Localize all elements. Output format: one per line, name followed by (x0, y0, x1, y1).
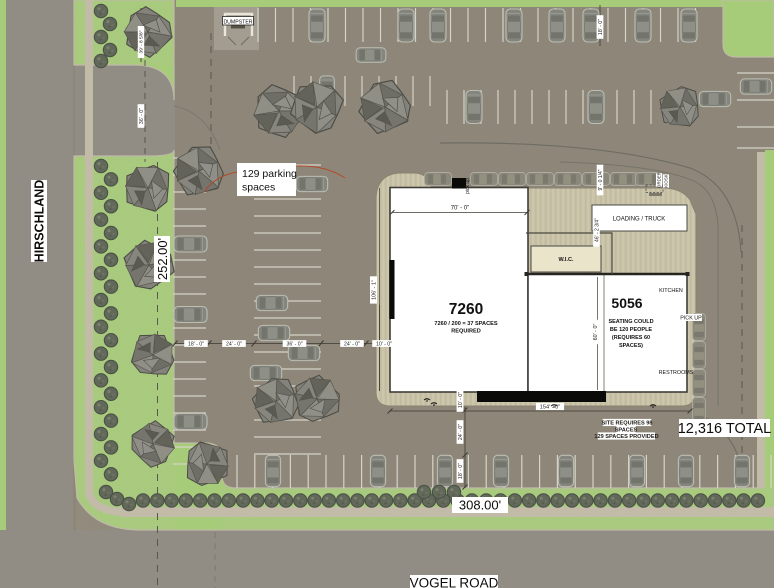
svg-text:36' - 0": 36' - 0" (139, 108, 145, 124)
svg-text:spaces: spaces (242, 182, 275, 194)
svg-text:12,316 TOTAL: 12,316 TOTAL (678, 421, 772, 437)
svg-text:(REQUIRES 60: (REQUIRES 60 (612, 335, 650, 341)
svg-text:DUMPSTER: DUMPSTER (223, 20, 252, 26)
svg-text:5056: 5056 (611, 295, 642, 311)
svg-text:REQUIRED: REQUIRED (451, 329, 481, 335)
svg-text:252.00': 252.00' (155, 238, 170, 280)
svg-text:24' - 0": 24' - 0" (458, 424, 464, 440)
svg-text:60' - 0": 60' - 0" (593, 324, 599, 341)
svg-text:SITE REQUIRES 98: SITE REQUIRES 98 (602, 421, 653, 427)
svg-text:24' - 0": 24' - 0" (226, 341, 242, 347)
svg-text:36' - 0": 36' - 0" (286, 341, 302, 347)
svg-text:KIOSK: KIOSK (664, 174, 669, 187)
svg-text:KITCHEN: KITCHEN (659, 288, 683, 294)
svg-text:W.I.C.: W.I.C. (559, 257, 574, 263)
svg-text:ORDER: ORDER (657, 172, 662, 188)
svg-text:PICK UP: PICK UP (680, 315, 702, 321)
svg-text:129 SPACES PROVIDED: 129 SPACES PROVIDED (594, 434, 658, 440)
svg-text:39' - 8 5/8": 39' - 8 5/8" (139, 30, 145, 53)
svg-text:24' - 0": 24' - 0" (344, 341, 360, 347)
svg-text:10' - 0": 10' - 0" (376, 341, 392, 347)
svg-text:HIRSCHLAND: HIRSCHLAND (33, 180, 47, 263)
svg-text:106' - 1": 106' - 1" (371, 280, 377, 300)
svg-text:70' - 0": 70' - 0" (451, 206, 470, 212)
svg-text:18' - 0": 18' - 0" (458, 463, 464, 479)
svg-text:VOGEL ROAD: VOGEL ROAD (410, 575, 499, 588)
svg-text:LOADING / TRUCK: LOADING / TRUCK (613, 217, 666, 223)
svg-text:129 parking: 129 parking (242, 168, 297, 180)
svg-text:46' - 2 3/4": 46' - 2 3/4" (594, 218, 600, 242)
svg-text:RESTROOMS: RESTROOMS (659, 370, 694, 376)
svg-text:pick up: pick up (465, 178, 471, 194)
svg-text:BE 120 PEOPLE: BE 120 PEOPLE (610, 327, 653, 333)
svg-text:18' - 0": 18' - 0" (598, 19, 604, 35)
svg-text:SPACES): SPACES) (619, 343, 643, 349)
svg-text:9' - 0 1/4": 9' - 0 1/4" (598, 169, 604, 190)
svg-text:308.00': 308.00' (459, 498, 501, 513)
svg-text:10' - 0": 10' - 0" (458, 392, 464, 408)
svg-text:SEATING COULD: SEATING COULD (608, 319, 653, 325)
svg-text:7260 / 200 = 37 SPACES: 7260 / 200 = 37 SPACES (434, 321, 497, 327)
svg-text:7260: 7260 (449, 301, 483, 318)
svg-text:18' - 0": 18' - 0" (188, 341, 204, 347)
svg-text:154' - 0": 154' - 0" (540, 405, 560, 411)
